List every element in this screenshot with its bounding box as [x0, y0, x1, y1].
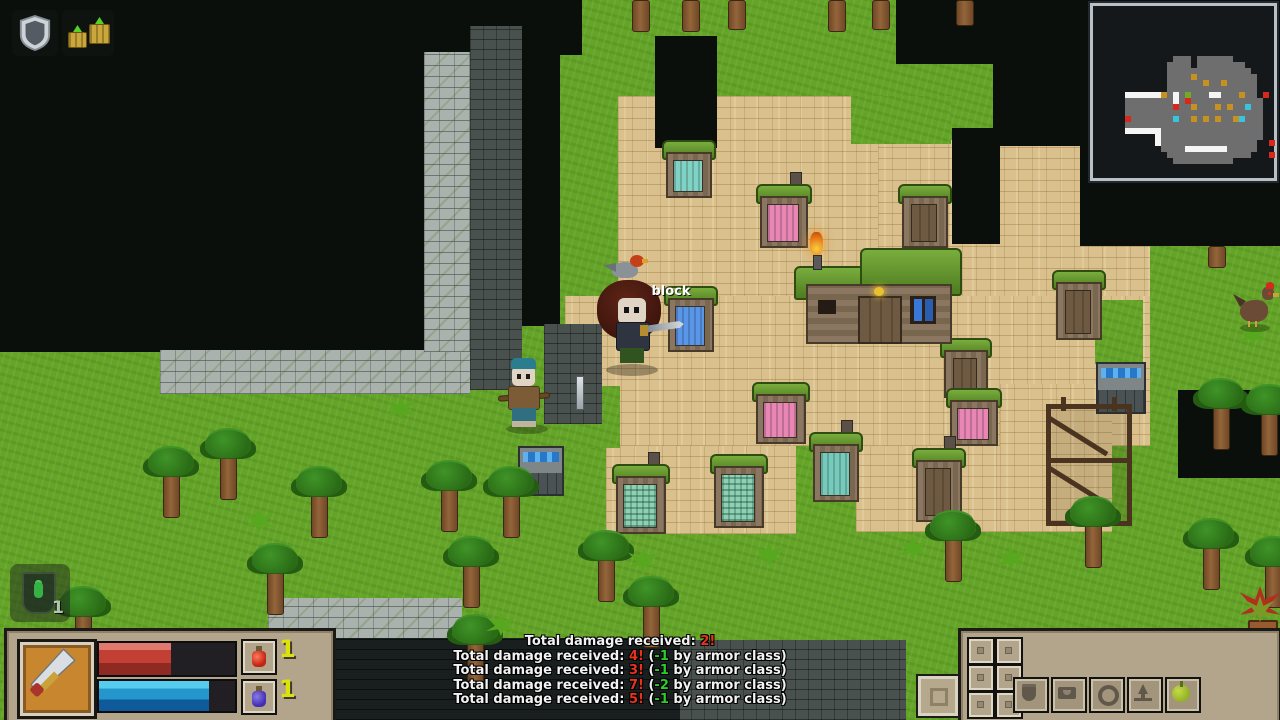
archer-feet	[512, 421, 536, 427]
window-pane	[914, 299, 922, 321]
player-panel: 1 1	[4, 628, 336, 720]
sapling-icon	[89, 24, 110, 44]
palm-tree	[1198, 380, 1244, 408]
minimap[interactable]	[1090, 3, 1277, 181]
minimap-pixel	[1245, 152, 1251, 158]
entity-shadow	[606, 364, 658, 376]
sword-icon	[23, 645, 79, 701]
minimap-pixel	[1263, 92, 1269, 98]
palm-tree	[1246, 386, 1280, 414]
unexplored-area	[952, 128, 1000, 244]
minimap-pixel	[1269, 140, 1275, 146]
floating-text-block: block	[636, 284, 706, 300]
palm-tree	[930, 512, 976, 540]
palm-tree	[488, 468, 534, 496]
palm-tree	[583, 532, 629, 560]
lodge-door[interactable]	[858, 296, 902, 344]
unexplored-area	[655, 36, 717, 148]
torch-post	[813, 255, 822, 270]
chicken-beak	[1273, 293, 1279, 297]
unexplored-area	[470, 0, 522, 28]
torch-flame-icon	[810, 232, 823, 256]
player-legs	[620, 348, 644, 363]
hut-door[interactable]	[925, 468, 951, 516]
palm-tree	[448, 538, 494, 566]
shield-glyph	[18, 14, 52, 52]
mana-potion-slot[interactable]	[241, 679, 277, 715]
quickslot[interactable]	[967, 691, 995, 719]
quickslot[interactable]	[967, 637, 995, 665]
health-bar	[97, 641, 237, 677]
loot-item-icon	[22, 572, 56, 614]
unexplored-area	[993, 28, 1083, 146]
tree-trunk-stub	[728, 0, 746, 30]
game-world: block	[0, 0, 1280, 720]
tree-trunk-stub	[1208, 246, 1226, 268]
minimap-pixel	[1269, 152, 1275, 158]
chicken-comb	[1266, 282, 1274, 289]
stone-wall	[160, 350, 470, 394]
palm-tree	[205, 430, 251, 458]
palm-tree	[252, 545, 298, 573]
tree-trunk-stub	[632, 0, 650, 32]
palm-tree	[1188, 520, 1234, 548]
tree-trunk-stub	[682, 0, 700, 32]
chicken-legs	[1248, 321, 1250, 327]
quickslot[interactable]	[967, 664, 995, 692]
health-potion-slot[interactable]	[241, 639, 277, 675]
hut-curtain	[763, 402, 797, 438]
hut-curtain	[820, 452, 850, 496]
minimap-pixel	[1257, 134, 1263, 140]
quickslot[interactable]	[995, 637, 1023, 665]
hut-door[interactable]	[1065, 290, 1091, 334]
palm-tree	[1250, 538, 1280, 566]
stone-wall-dark	[470, 26, 522, 390]
tree-trunk-stub	[828, 0, 846, 32]
mana-fill	[99, 681, 209, 711]
health-potion-icon	[252, 651, 266, 667]
hotbar-satchel-button[interactable]	[1051, 677, 1087, 713]
archer-legs	[512, 408, 536, 422]
minimap-pixel	[1227, 158, 1233, 164]
regrowth-buff-icon[interactable]	[62, 10, 114, 56]
game-screen: block 1 1 1	[0, 0, 1280, 720]
hotbar-panel	[958, 628, 1280, 720]
hotbar-crest-button[interactable]	[1013, 677, 1049, 713]
combat-log-line: Total damage received: 2!	[380, 635, 860, 650]
stone-wall-dark	[544, 324, 602, 424]
shield-buff-icon[interactable]	[12, 10, 58, 56]
lamp-icon	[874, 287, 884, 296]
hotbar-food-button[interactable]	[1165, 677, 1201, 713]
archer-bandana	[511, 358, 536, 369]
hotbar-ring-button[interactable]	[1089, 677, 1125, 713]
grass-pocket	[1095, 300, 1143, 364]
hut-curtain	[623, 484, 657, 528]
npc-sword-ground	[576, 376, 584, 410]
loot-toast: 1	[10, 564, 70, 622]
weapon-slot[interactable]	[17, 639, 97, 719]
hut-curtain	[673, 160, 703, 192]
hut-curtain	[767, 204, 799, 242]
archer-eyes	[517, 374, 521, 379]
sapling-icon	[68, 32, 87, 48]
combat-log-line: Total damage received: 7! (-2 by armor c…	[380, 679, 860, 694]
archer-head[interactable]	[512, 366, 535, 386]
toggle-glyph	[930, 688, 948, 706]
palm-tree	[628, 578, 674, 606]
player-head[interactable]	[618, 298, 646, 324]
health-fill	[99, 643, 171, 675]
combat-log-line: Total damage received: 3! (-1 by armor c…	[380, 664, 860, 679]
palm-tree	[148, 448, 194, 476]
entity-shadow	[1240, 324, 1270, 332]
panel-toggle-button[interactable]	[916, 674, 960, 718]
tree-trunk-stub	[956, 0, 974, 26]
mana-potion-icon	[252, 691, 266, 707]
hut-door[interactable]	[953, 358, 977, 392]
chicken[interactable]	[1240, 300, 1268, 322]
palm-tree	[296, 468, 342, 496]
health-potion-count: 1	[279, 635, 296, 663]
bird-beak	[642, 259, 648, 263]
hotbar-ascend-button[interactable]	[1127, 677, 1163, 713]
player-eyes	[624, 307, 629, 313]
grass-pocket	[851, 96, 951, 144]
hut-curtain	[957, 408, 989, 440]
player-sword-hilt	[640, 325, 648, 336]
archer-body[interactable]	[508, 386, 540, 410]
chicken-eye	[1268, 292, 1271, 295]
water	[1101, 368, 1141, 378]
minimap-pixel	[1251, 146, 1257, 152]
hut-door[interactable]	[911, 204, 937, 242]
unexplored-area	[558, 0, 582, 55]
combat-log: Total damage received: 2!Total damage re…	[380, 635, 860, 708]
combat-log-line: Total damage received: 4! (-1 by armor c…	[380, 650, 860, 665]
palm-tree	[426, 462, 472, 490]
gem-icon	[34, 582, 43, 598]
mana-potion-count: 1	[279, 675, 296, 703]
palm-tree	[1070, 498, 1116, 526]
unexplored-area	[520, 0, 560, 326]
combat-log-line: Total damage received: 5! (-1 by armor c…	[380, 693, 860, 708]
tree-trunk-stub	[872, 0, 890, 30]
hut-curtain	[721, 474, 755, 522]
mana-bar	[97, 679, 237, 713]
stone-wall	[424, 52, 470, 352]
lodge-window-dark	[818, 300, 836, 314]
window-pane	[925, 299, 933, 321]
loot-count: 1	[52, 598, 64, 618]
water	[523, 452, 559, 462]
